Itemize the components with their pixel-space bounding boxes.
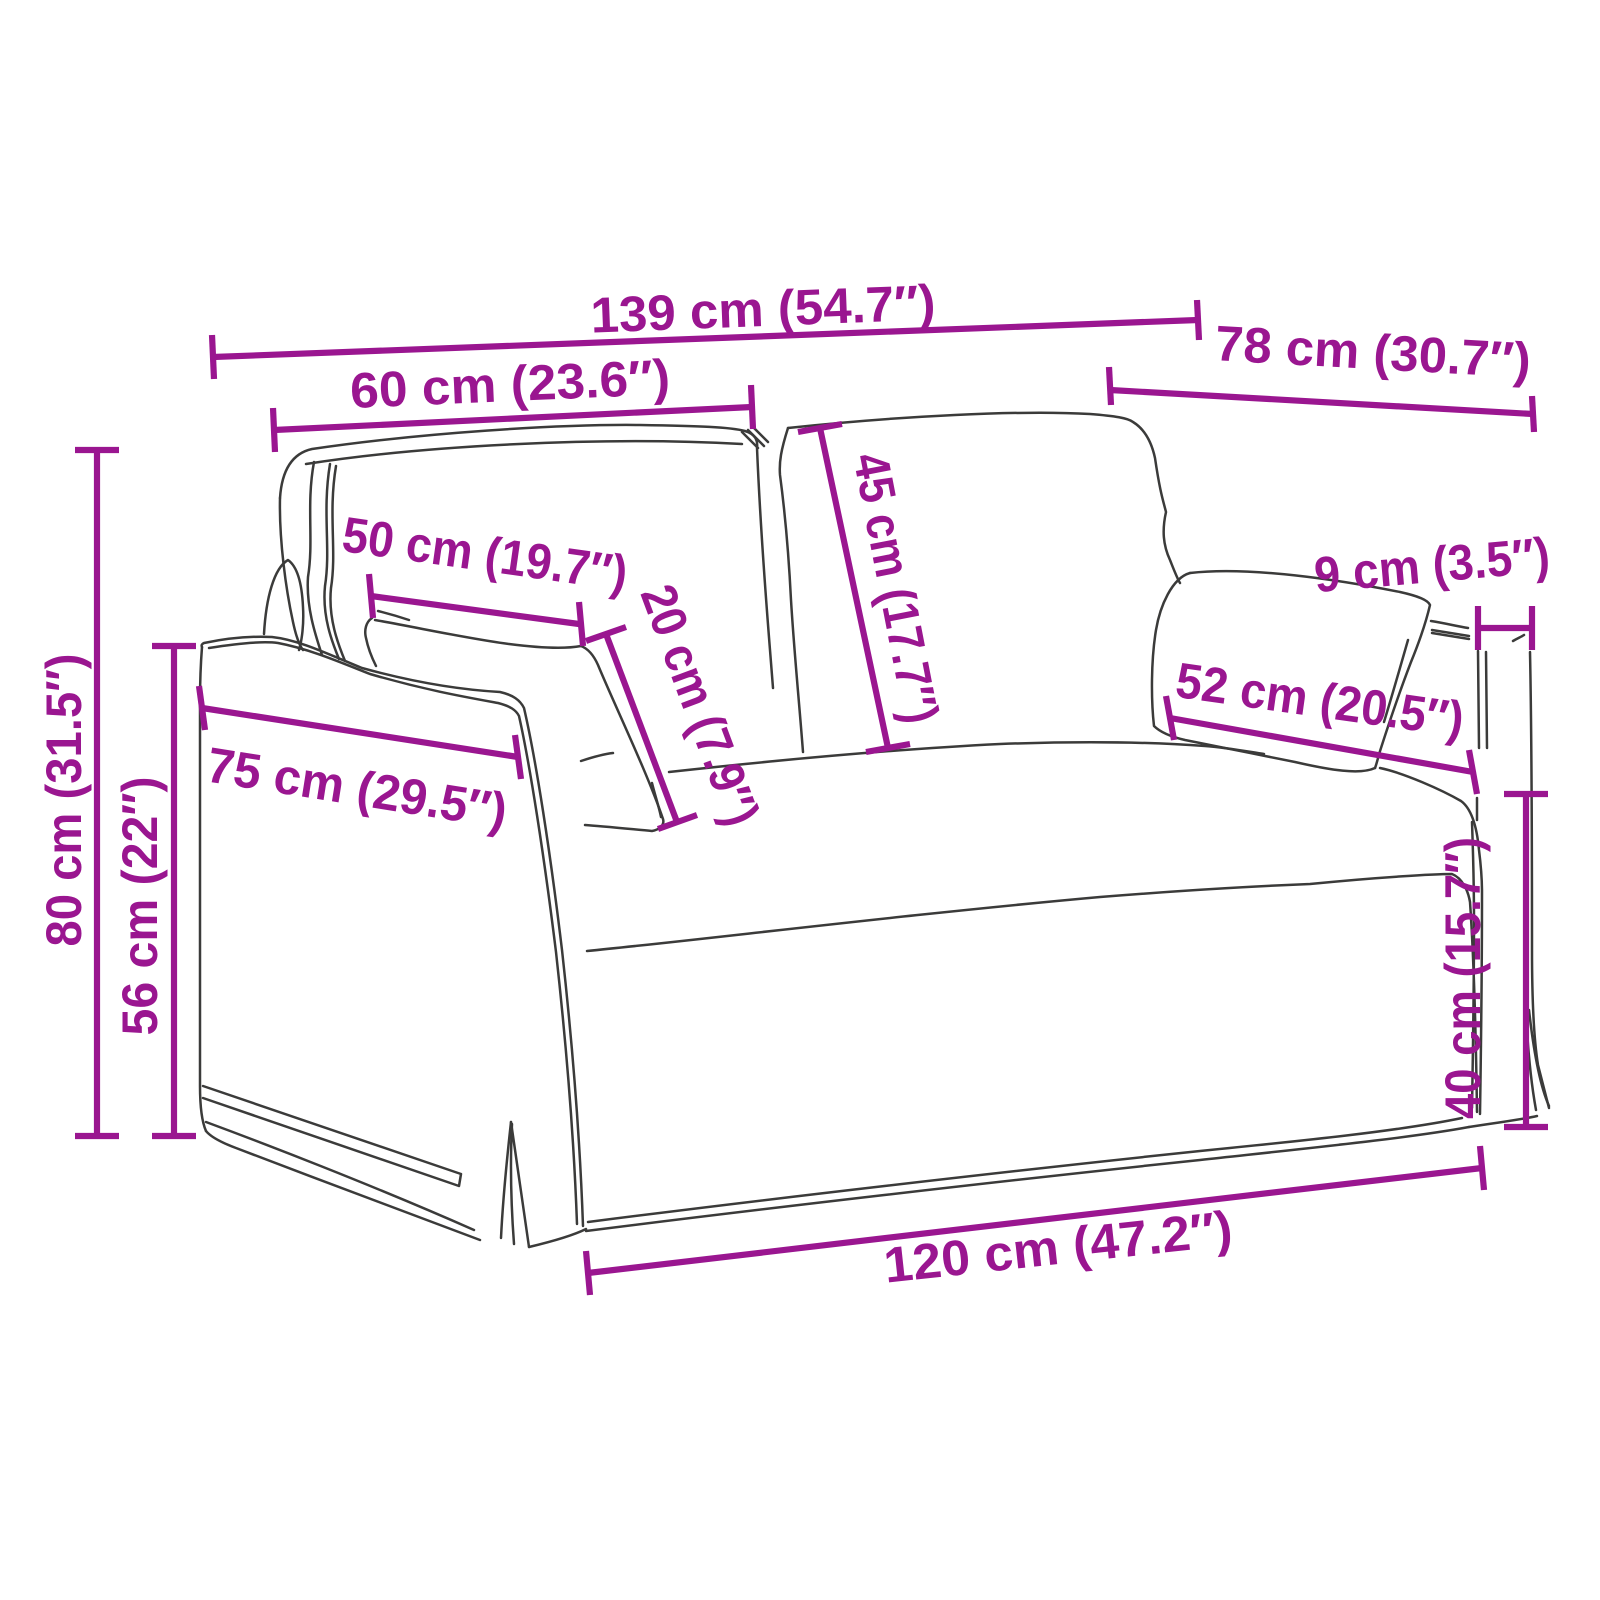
svg-text:80 cm (31.5″): 80 cm (31.5″) — [36, 654, 92, 947]
svg-text:56 cm (22″): 56 cm (22″) — [112, 777, 168, 1036]
svg-text:40 cm (15.7″): 40 cm (15.7″) — [1435, 837, 1491, 1119]
